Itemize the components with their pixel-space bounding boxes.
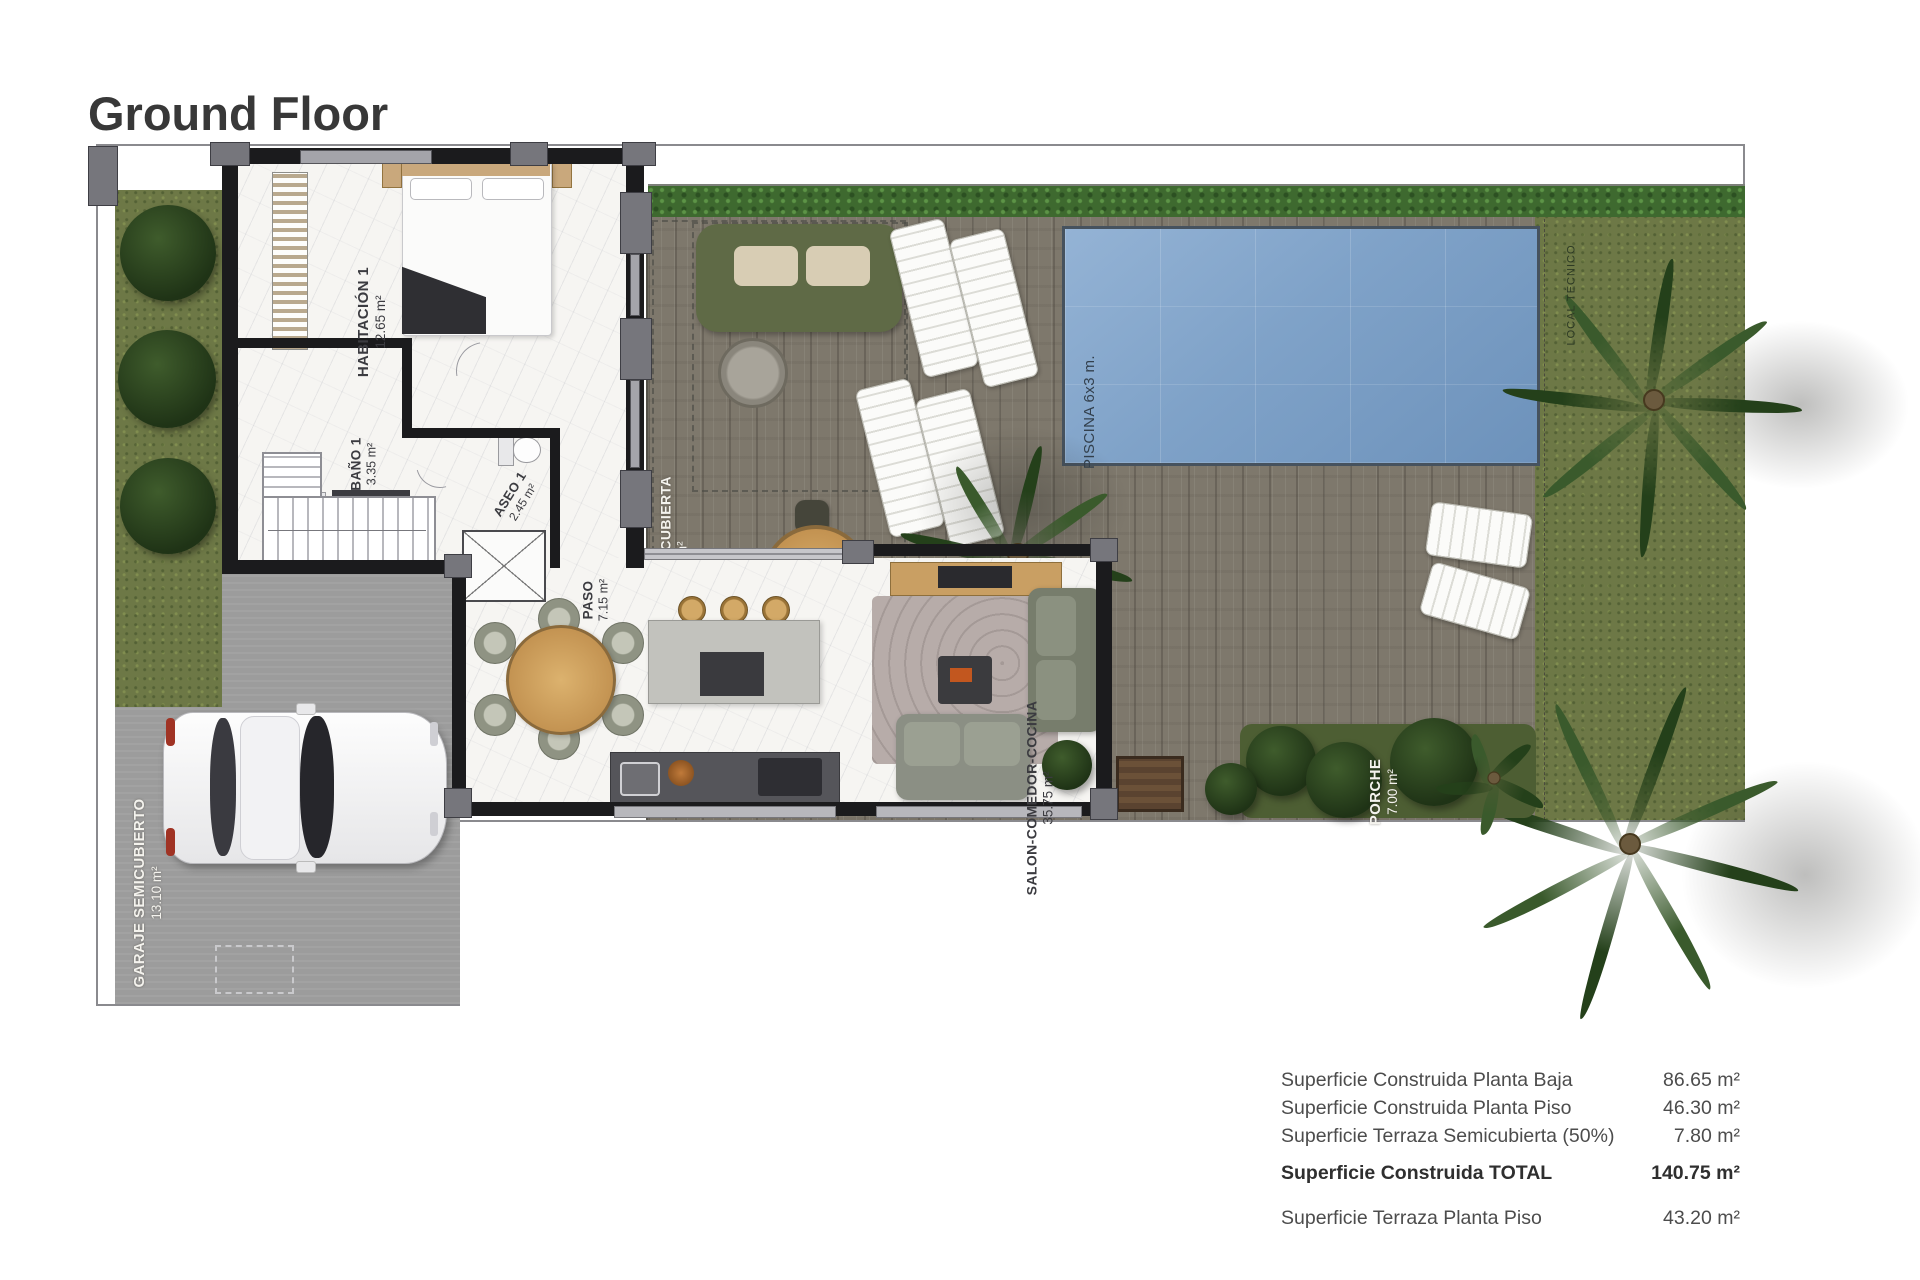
- wall: [402, 428, 560, 438]
- pillar: [88, 146, 118, 206]
- car-headlight: [430, 812, 438, 836]
- stairs-direction-line: [268, 530, 426, 531]
- wall: [222, 560, 464, 574]
- room-label-bano1: BAÑO 1 3.35 m²: [348, 437, 379, 490]
- tree-icon: [118, 330, 216, 428]
- floor-plan-page: Ground Floor GARAJE SEMICUBIERTO 13.10 m…: [0, 0, 1920, 1280]
- pillar: [620, 318, 652, 380]
- bush-icon: [1205, 763, 1257, 815]
- window: [630, 254, 640, 316]
- room-label-habitacion1: HABITACIÓN 1 12.65 m²: [355, 267, 389, 377]
- sofa-cushion: [904, 722, 960, 766]
- car-mirror: [296, 703, 316, 715]
- car-windshield: [300, 716, 334, 858]
- toilet-tank: [498, 434, 514, 466]
- coffee-table-book: [950, 668, 972, 682]
- pillar: [444, 554, 472, 578]
- summary-row: Superficie Terraza Semicubierta (50%) 7.…: [1281, 1122, 1740, 1150]
- wall: [850, 544, 1096, 556]
- sliding-glass-door: [644, 548, 852, 560]
- wall: [402, 338, 412, 438]
- wardrobe-icon: [272, 172, 308, 350]
- room-label-salon: SALON-COMEDOR-COCINA 35.75 m²: [1024, 701, 1057, 896]
- summary-row: Superficie Construida Planta Piso 46.30 …: [1281, 1094, 1740, 1122]
- tree-icon: [120, 458, 216, 554]
- stairs-icon: [262, 496, 436, 570]
- area-summary-table: Superficie Construida Planta Baja 86.65 …: [1281, 1066, 1740, 1232]
- car-rear-window: [210, 718, 236, 856]
- door-mat-icon: [1116, 756, 1184, 812]
- window: [630, 380, 640, 468]
- pillar: [842, 540, 874, 564]
- stairs-upper-flight: [262, 452, 322, 498]
- sofa-cushion: [1036, 596, 1076, 656]
- nightstand-icon: [382, 162, 402, 188]
- wall: [452, 560, 466, 814]
- dining-table-icon: [506, 625, 616, 735]
- nightstand-icon: [552, 162, 572, 188]
- window: [300, 150, 432, 164]
- summary-row-extra: Superficie Terraza Planta Piso 43.20 m²: [1281, 1204, 1740, 1232]
- cooktop-icon: [758, 758, 822, 796]
- summary-row: Superficie Construida Planta Baja 86.65 …: [1281, 1066, 1740, 1094]
- wall: [222, 148, 238, 572]
- island-cooktop: [700, 652, 764, 696]
- outdoor-sofa-icon: [696, 224, 902, 332]
- room-label-paso: PASO 7.15 m²: [580, 579, 611, 621]
- tv-icon: [938, 566, 1012, 588]
- car-headlight: [430, 722, 438, 746]
- pillar: [510, 142, 548, 166]
- boundary-bottom-left: [96, 1004, 460, 1006]
- pillar: [210, 142, 250, 166]
- summary-row-total: Superficie Construida TOTAL 140.75 m²: [1281, 1159, 1740, 1187]
- car-taillight: [166, 828, 175, 856]
- swimming-pool: [1062, 226, 1540, 466]
- car-taillight: [166, 718, 175, 746]
- boundary-top: [96, 144, 1745, 146]
- car-roof: [240, 716, 300, 860]
- toilet-icon: [513, 437, 541, 463]
- sofa-cushion: [964, 722, 1020, 766]
- wall: [550, 428, 560, 568]
- kitchen-sink-icon: [620, 762, 660, 796]
- pillar: [1090, 788, 1118, 820]
- room-label-garaje: GARAJE SEMICUBIERTO 13.10 m²: [131, 798, 165, 987]
- window: [614, 806, 836, 818]
- pillow-icon: [482, 178, 544, 200]
- room-label-porche: PORCHE 7.00 m²: [1367, 759, 1401, 826]
- car-mirror: [296, 861, 316, 873]
- pillar: [620, 470, 652, 528]
- tree-icon: [120, 205, 216, 301]
- pillar: [444, 788, 472, 818]
- room-label-local-tecnico: LOCAL TÉCNICO: [1565, 244, 1578, 345]
- sofa-cushion: [734, 246, 798, 286]
- shower-icon: [462, 530, 546, 602]
- sofa-cushion: [806, 246, 870, 286]
- wall: [222, 148, 648, 164]
- top-hedge: [648, 184, 1745, 217]
- pillar: [620, 192, 652, 254]
- driveway-marking: [215, 945, 294, 994]
- pillar: [622, 142, 656, 166]
- outdoor-side-table-icon: [718, 338, 788, 408]
- wall: [1096, 544, 1112, 816]
- page-title: Ground Floor: [88, 86, 388, 141]
- pillar: [1090, 538, 1118, 562]
- pillow-icon: [410, 178, 472, 200]
- garden-dash-line: [1544, 214, 1546, 820]
- pot-icon: [668, 760, 694, 786]
- boundary-left: [96, 144, 98, 1006]
